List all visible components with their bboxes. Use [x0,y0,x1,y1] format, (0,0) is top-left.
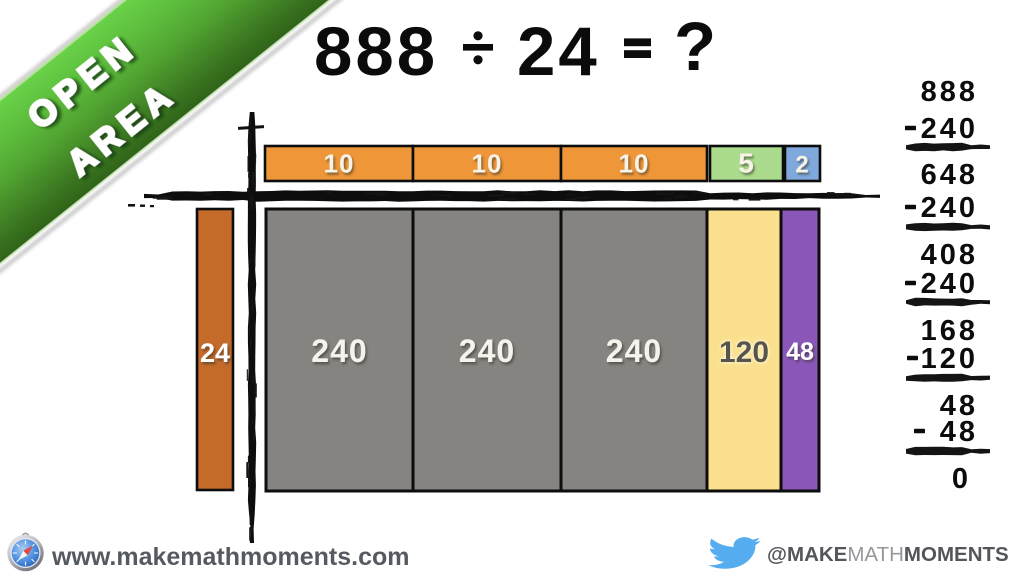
svg-text:240: 240 [606,333,662,369]
svg-text:24: 24 [200,338,230,368]
svg-text:0: 0 [952,463,971,495]
svg-text:www.makemathmoments.com: www.makemathmoments.com [51,543,410,571]
svg-text:240: 240 [459,333,515,369]
svg-text:2: 2 [795,152,809,179]
svg-text:240: 240 [921,268,978,300]
svg-text:120: 120 [921,343,978,375]
svg-text:10: 10 [619,149,650,179]
svg-text:48: 48 [940,416,978,448]
svg-text:10: 10 [472,149,503,179]
svg-text:648: 648 [921,159,978,191]
svg-text:240: 240 [311,333,367,369]
svg-text:48: 48 [786,338,814,366]
svg-text:10: 10 [324,149,355,179]
svg-text:240: 240 [921,113,978,145]
svg-text:240: 240 [921,192,978,224]
svg-text:888: 888 [921,76,978,108]
svg-text:5: 5 [738,148,755,179]
svg-text:120: 120 [719,336,769,369]
svg-text:24: 24 [517,13,600,90]
svg-text:888: 888 [314,13,438,90]
svg-text:@MAKEMATHMOMENTS: @MAKEMATHMOMENTS [767,543,1009,566]
svg-text:?: ? [674,8,716,85]
svg-text:408: 408 [921,239,978,271]
